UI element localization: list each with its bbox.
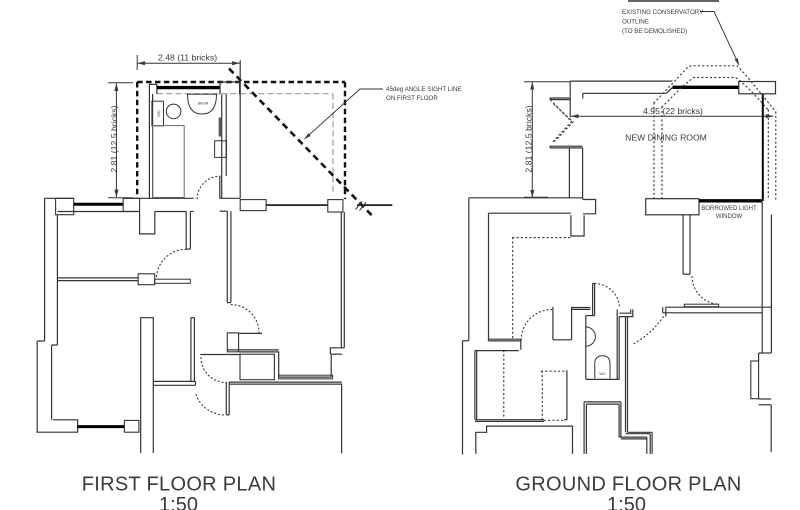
svg-text:4.95 (22 bricks): 4.95 (22 bricks): [643, 106, 703, 116]
svg-text:WINDOW: WINDOW: [716, 214, 743, 220]
svg-text:1:50: 1:50: [159, 494, 198, 510]
svg-text:WC: WC: [156, 110, 161, 117]
svg-text:(TO BE DEMOLISHED): (TO BE DEMOLISHED): [622, 28, 687, 35]
svg-text:ON FIRST FLOOR: ON FIRST FLOOR: [386, 95, 438, 102]
svg-text:2.81 (12.5 bricks): 2.81 (12.5 bricks): [109, 105, 119, 172]
svg-text:45deg ANGLE SIGHT LINE: 45deg ANGLE SIGHT LINE: [386, 86, 462, 93]
svg-text:GROUND FLOOR PLAN: GROUND FLOOR PLAN: [515, 474, 741, 496]
svg-text:OUTLINE: OUTLINE: [622, 19, 649, 26]
svg-text:1:50: 1:50: [607, 494, 646, 510]
svg-text:BASIN: BASIN: [198, 102, 209, 106]
svg-text:BORROWED LIGHT: BORROWED LIGHT: [701, 206, 757, 212]
svg-text:FIRST FLOOR PLAN: FIRST FLOOR PLAN: [82, 474, 276, 496]
svg-text:EXISTING CONSERVATORY: EXISTING CONSERVATORY: [622, 9, 703, 16]
svg-text:NEW DINING ROOM: NEW DINING ROOM: [625, 133, 707, 143]
svg-text:WC: WC: [599, 372, 606, 376]
svg-text:2.48 (11 bricks): 2.48 (11 bricks): [158, 53, 217, 63]
